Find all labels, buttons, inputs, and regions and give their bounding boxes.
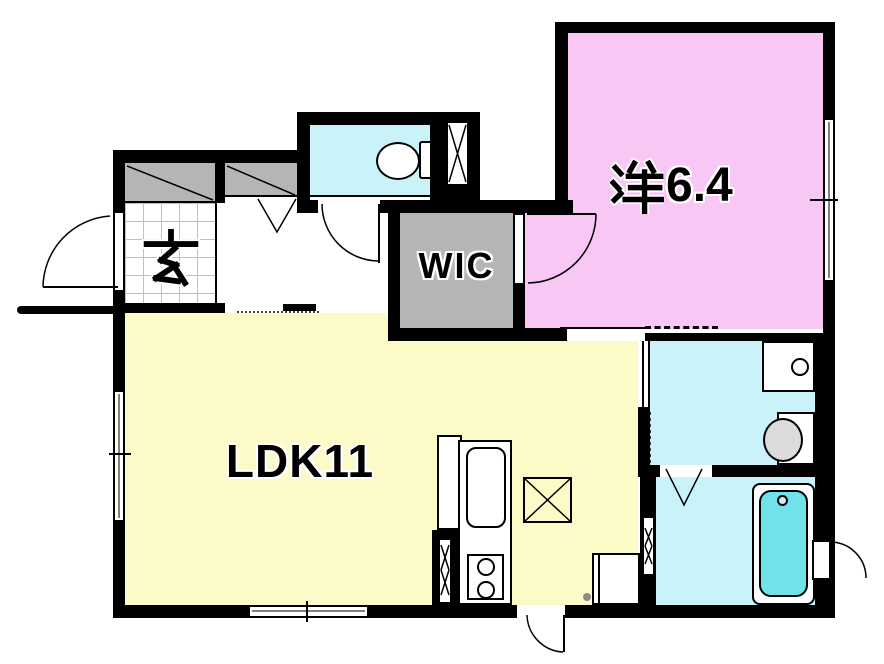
western-room-area-text: 6.4 (666, 162, 733, 210)
toilet-door-swing-icon (322, 204, 379, 263)
floor-hatch-x-icon (524, 478, 571, 522)
ldk-label: LDK11 (150, 438, 450, 484)
washroom-sliding-door-icon (643, 341, 650, 472)
western-room-label-text: 洋6.4 (610, 156, 611, 157)
western-room-kanji-icon (610, 158, 664, 214)
wic-label: WIC (400, 248, 513, 284)
plan-line-overlay (0, 0, 884, 664)
closet-diagonal-marks (127, 166, 295, 200)
closet-folding-door-icon (258, 199, 296, 232)
floor-plan: 玄 WIC 洋6.4 6.4 LDK11 (0, 0, 884, 664)
entrance-label: 玄 (142, 226, 200, 290)
entrance-door-swing-icon (43, 216, 118, 287)
terrace-door-swing-icon (527, 615, 564, 652)
bathroom-folding-door-icon (666, 469, 702, 505)
exterior-door-swing-icon (830, 542, 866, 578)
entrance-kanji-icon (142, 226, 200, 290)
western-room-label: 洋6.4 6.4 (610, 156, 770, 214)
wic-door-swing-icon (527, 214, 596, 283)
